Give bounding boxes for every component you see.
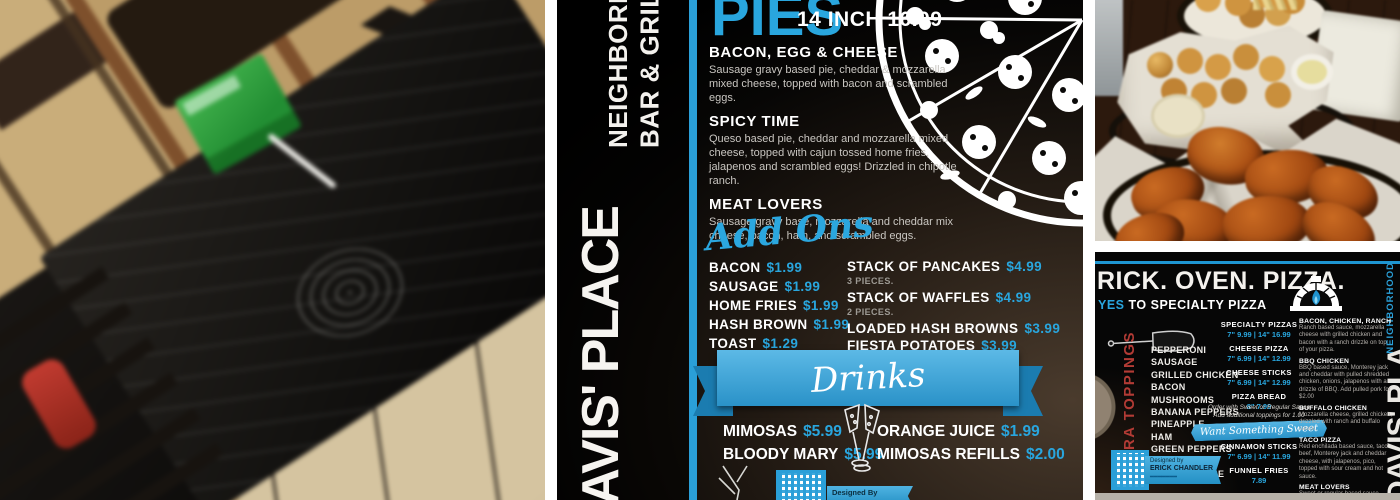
price-item: FUNNEL FRIES 7.89 xyxy=(1211,466,1307,485)
table-edge xyxy=(1095,493,1400,500)
photo-gallery-strip: NEIGHBORHO BAR & GRILL AVIS' PLACE xyxy=(0,0,1400,500)
specialty-descriptions: BACON, CHICKEN, RANCH Ranch based sauce,… xyxy=(1299,318,1393,500)
addons-column-left: BACON$1.99 SAUSAGE$1.99 HOME FRIES$1.99 … xyxy=(709,258,849,353)
addon-item: STACK OF PANCAKES$4.99 3 PIECES. xyxy=(847,258,1077,287)
menu-item-desc: Sausage gravy based pie, cheddar & mozza… xyxy=(709,63,971,105)
designer-url: ▂▂▂▂▂▂▂ xyxy=(1150,472,1216,479)
price-item: CHEESE STICKS 7" 6.99 | 14" 12.99 xyxy=(1211,368,1307,387)
price-item: CHEESE PIZZA 7" 6.99 | 14" 12.99 xyxy=(1211,344,1307,363)
addon-item: HASH BROWN$1.99 xyxy=(709,315,849,334)
designer-name: ERICK CHANDLER xyxy=(1150,465,1216,472)
addon-note: 3 PIECES. xyxy=(847,276,1077,287)
specialty-item: BBQ CHICKEN BBQ based sauce, Monterey ja… xyxy=(1299,358,1393,402)
breakfast-menu-content: PIES 14 INCH 16.99 BACON, EGG & CHEESE S… xyxy=(697,0,1083,500)
brand-strip: NEIGHBORHO BAR & GRILL AVIS' PLACE xyxy=(557,0,689,500)
drinks-ribbon: Drinks xyxy=(717,350,1019,406)
specialty-item: BUFFALO CHICKEN Mozzarella cheese, grill… xyxy=(1299,405,1393,434)
designed-by-ribbon: Designed by ERICK CHANDLER ▂▂▂▂▂▂▂ xyxy=(1145,456,1221,484)
blue-divider xyxy=(689,0,697,500)
menu-item-name: BACON, EGG & CHEESE xyxy=(709,44,977,61)
designed-by-ribbon: Designed By xyxy=(827,486,913,500)
designed-by-label: Designed by xyxy=(1150,458,1216,465)
qr-code xyxy=(1111,450,1149,490)
vignette xyxy=(1095,0,1400,241)
menu-item: BACON, EGG & CHEESE Sausage gravy based … xyxy=(709,44,977,105)
addons-column-right: STACK OF PANCAKES$4.99 3 PIECES. STACK O… xyxy=(847,258,1077,354)
brick-oven-icon xyxy=(1287,264,1345,314)
subtitle-rest: TO SPECIALTY PIZZA xyxy=(1129,298,1267,312)
addon-item: LOADED HASH BROWNS$3.99 xyxy=(847,320,1077,337)
addon-item: BACON$1.99 xyxy=(709,258,849,277)
subtitle-accent: YES xyxy=(1098,298,1125,312)
price-column: SPECIALTY PIZZAS 7" 9.99 | 14" 16.99 CHE… xyxy=(1211,320,1307,416)
sweet-items: CINNAMON STICKS 7" 6.99 | 14" 11.99 FUNN… xyxy=(1211,442,1307,490)
addon-item: HOME FRIES$1.99 xyxy=(709,296,849,315)
menu-item-desc: Queso based pie, cheddar and mozzarella … xyxy=(709,132,971,188)
price-item: CINNAMON STICKS 7" 6.99 | 14" 11.99 xyxy=(1211,442,1307,461)
menu-item: SPICY TIME Queso based pie, cheddar and … xyxy=(709,113,977,188)
drinks-heading: Drinks xyxy=(810,355,926,401)
menu-item-name: SPICY TIME xyxy=(709,113,977,130)
specialty-item: BACON, CHICKEN, RANCH Ranch based sauce,… xyxy=(1299,318,1393,355)
price-item: SPECIALTY PIZZAS 7" 9.99 | 14" 16.99 xyxy=(1211,320,1307,339)
specialty-item: TACO PIZZA Red enchilada based sauce, ta… xyxy=(1299,437,1393,481)
brand-name: AVIS' PLACE xyxy=(571,207,631,500)
gallery-photo-pizza-menu[interactable]: RICK. OVEN. PIZZA. YESTO SPECIALTY PIZZA… xyxy=(1095,252,1400,500)
champagne-glasses-icon xyxy=(835,402,887,490)
vignette xyxy=(0,0,545,500)
drinks-column-right: ORANGE JUICE$1.99 MIMOSAS REFILLS$2.00 xyxy=(877,420,1065,466)
drink-item: ORANGE JUICE$1.99 xyxy=(877,420,1065,443)
gallery-photo-breakfast-menu[interactable]: NEIGHBORHO BAR & GRILL AVIS' PLACE xyxy=(557,0,1083,500)
cocktail-sketch xyxy=(717,464,769,500)
gallery-photo-food[interactable] xyxy=(1095,0,1400,241)
gallery-photo-interior[interactable] xyxy=(0,0,545,500)
addon-note: 2 PIECES. xyxy=(847,307,1077,318)
addon-item: STACK OF WAFFLES$4.99 2 PIECES. xyxy=(847,289,1077,318)
pizza-menu-subtitle: YESTO SPECIALTY PIZZA xyxy=(1098,298,1267,312)
drink-item: MIMOSAS REFILLS$2.00 xyxy=(877,443,1065,466)
addon-item: SAUSAGE$1.99 xyxy=(709,277,849,296)
blue-rule xyxy=(1095,261,1400,264)
menu-subtitle: 14 INCH 16.99 xyxy=(797,8,942,32)
brand-tagline: NEIGHBORHO BAR & GRILL xyxy=(603,0,666,148)
qr-code xyxy=(776,470,826,500)
